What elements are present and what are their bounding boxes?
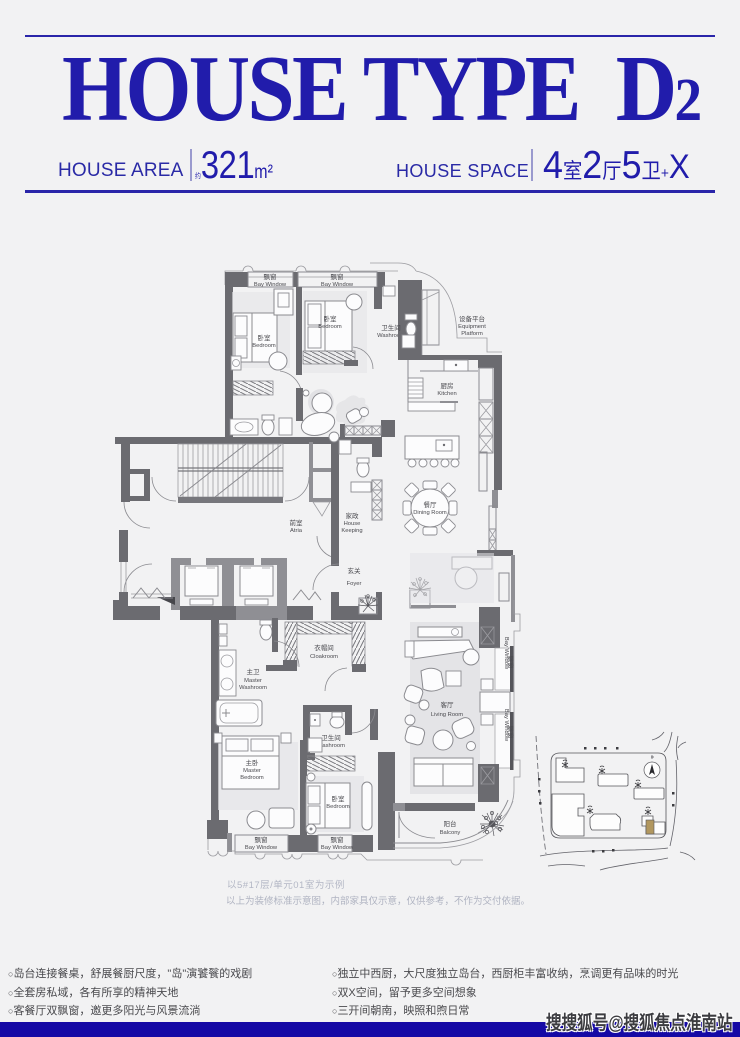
svg-text:Master: Master <box>244 678 262 684</box>
svg-text:Platform: Platform <box>461 331 483 337</box>
svg-text:玄关: 玄关 <box>348 566 362 575</box>
svg-text:Dining Room: Dining Room <box>413 510 447 516</box>
svg-text:飘窗: 飘窗 <box>264 272 277 281</box>
svg-text:家政: 家政 <box>346 511 360 520</box>
svg-text:Equipment: Equipment <box>458 324 486 330</box>
svg-text:飘窗: 飘窗 <box>331 272 344 281</box>
svg-text:前室: 前室 <box>290 518 304 527</box>
svg-text:厨房: 厨房 <box>441 381 454 390</box>
svg-text:Bay Window: Bay Window <box>321 845 354 851</box>
svg-text:阳台: 阳台 <box>444 819 457 828</box>
svg-text:Keeping: Keeping <box>341 528 362 534</box>
svg-text:Living Room: Living Room <box>431 712 463 718</box>
svg-text:Bedroom: Bedroom <box>318 324 342 330</box>
svg-text:Bay Window: Bay Window <box>254 282 287 288</box>
svg-text:设备平台: 设备平台 <box>459 314 485 323</box>
svg-text:Master: Master <box>243 768 261 774</box>
svg-text:Bay Window: Bay Window <box>321 282 354 288</box>
svg-text:卧室: 卧室 <box>332 794 346 803</box>
svg-text:飘窗: 飘窗 <box>255 835 268 844</box>
svg-text:Washroom: Washroom <box>239 685 267 691</box>
svg-text:Bedroom: Bedroom <box>252 343 276 349</box>
svg-text:卧室: 卧室 <box>258 333 272 342</box>
svg-text:Cloakroom: Cloakroom <box>310 654 338 660</box>
svg-text:卫生间: 卫生间 <box>321 733 341 742</box>
svg-text:Bay Window: Bay Window <box>245 845 278 851</box>
svg-text:飘窗: 飘窗 <box>331 835 344 844</box>
svg-text:衣帽间: 衣帽间 <box>314 643 334 652</box>
svg-text:餐厅: 餐厅 <box>424 500 438 509</box>
svg-text:卫生间: 卫生间 <box>381 323 401 332</box>
svg-text:主卫: 主卫 <box>247 667 261 676</box>
svg-text:Bedroom: Bedroom <box>240 775 264 781</box>
svg-text:主卧: 主卧 <box>246 758 260 767</box>
svg-text:客厅: 客厅 <box>441 700 455 709</box>
svg-text:Kitchen: Kitchen <box>437 391 456 397</box>
svg-text:Balcony: Balcony <box>440 830 461 836</box>
svg-text:卧室: 卧室 <box>324 314 338 323</box>
svg-text:House: House <box>344 521 361 527</box>
svg-text:Bedroom: Bedroom <box>326 804 350 810</box>
svg-text:Atria: Atria <box>290 528 303 534</box>
svg-text:Foyer: Foyer <box>347 581 362 587</box>
